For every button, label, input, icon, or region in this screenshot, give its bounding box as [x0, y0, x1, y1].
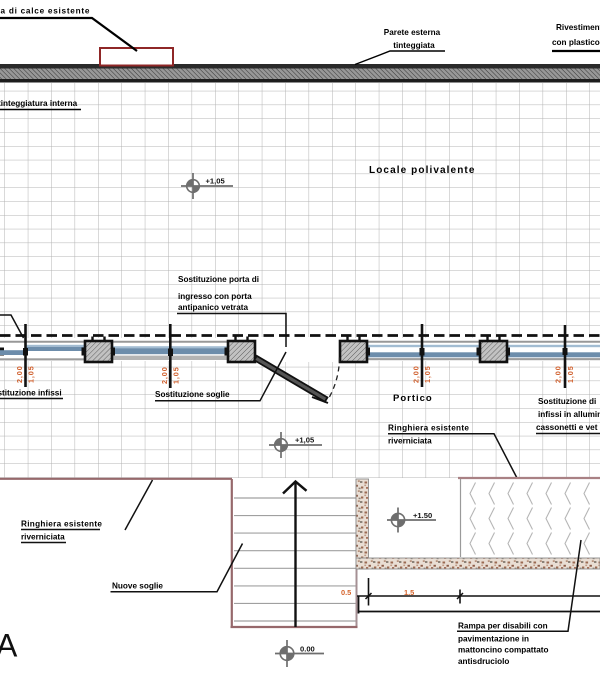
svg-text:Locale polivalente: Locale polivalente [369, 165, 476, 176]
svg-text:con plastico int: con plastico int [552, 38, 600, 47]
svg-text:A: A [0, 628, 18, 664]
svg-text:ingresso con porta: ingresso con porta [178, 292, 252, 301]
svg-text:tinteggiata: tinteggiata [393, 41, 435, 50]
svg-text:2,00: 2,00 [160, 366, 169, 384]
svg-text:+1,05: +1,05 [206, 177, 226, 186]
svg-text:1,05: 1,05 [566, 365, 575, 383]
svg-text:pavimentazione in: pavimentazione in [458, 635, 529, 644]
svg-text:antipanico vetrata: antipanico vetrata [178, 303, 249, 312]
svg-text:+1.50: +1.50 [413, 511, 432, 520]
svg-text:a di calce esistente: a di calce esistente [1, 7, 91, 16]
svg-text:Parete esterna: Parete esterna [384, 28, 441, 37]
svg-text:2,00: 2,00 [412, 365, 421, 383]
svg-text:+1,05: +1,05 [295, 436, 315, 445]
svg-text:Sostituzione di: Sostituzione di [538, 397, 596, 406]
svg-text:0.5: 0.5 [341, 588, 351, 597]
svg-text:tinteggiatura interna: tinteggiatura interna [0, 99, 78, 108]
svg-text:antisdruciolo: antisdruciolo [458, 657, 509, 666]
svg-text:Ringhiera esistente: Ringhiera esistente [21, 520, 102, 529]
svg-text:1,05: 1,05 [423, 365, 432, 383]
svg-text:Sostituzione soglie: Sostituzione soglie [155, 390, 230, 399]
svg-text:Ringhiera esistente: Ringhiera esistente [388, 424, 469, 433]
svg-text:Portico: Portico [393, 393, 433, 404]
svg-text:Sostituzione infissi: Sostituzione infissi [0, 389, 62, 398]
svg-text:Rivestimento: Rivestimento [556, 23, 600, 32]
svg-text:1,05: 1,05 [171, 366, 180, 384]
svg-text:1,05: 1,05 [27, 365, 36, 383]
svg-text:1.5: 1.5 [404, 588, 414, 597]
svg-text:0.00: 0.00 [300, 645, 315, 654]
svg-text:infissi in allumin: infissi in allumin [538, 410, 600, 419]
svg-text:riverniciata: riverniciata [388, 437, 432, 446]
svg-text:Sostituzione porta di: Sostituzione porta di [178, 275, 259, 284]
svg-text:Rampa per disabili con: Rampa per disabili con [458, 622, 548, 631]
svg-text:cassonetti e vet: cassonetti e vet [536, 423, 598, 432]
svg-text:2,00: 2,00 [554, 365, 563, 383]
svg-text:mattoncino compattato: mattoncino compattato [458, 646, 549, 655]
svg-text:Nuove soglie: Nuove soglie [112, 582, 163, 591]
svg-text:2,00: 2,00 [15, 365, 24, 383]
svg-text:riverniciata: riverniciata [21, 533, 65, 542]
